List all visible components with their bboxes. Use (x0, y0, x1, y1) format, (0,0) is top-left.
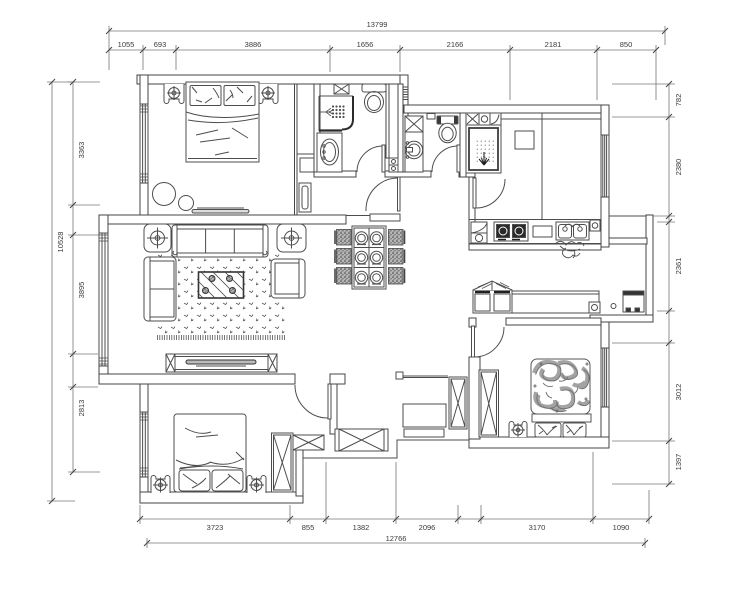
svg-text:693: 693 (154, 40, 167, 49)
svg-text:10528: 10528 (56, 232, 65, 253)
svg-text:3886: 3886 (245, 40, 262, 49)
svg-text:3363: 3363 (77, 142, 86, 159)
svg-text:1656: 1656 (357, 40, 374, 49)
svg-text:2166: 2166 (447, 40, 464, 49)
svg-text:850: 850 (620, 40, 633, 49)
svg-text:2813: 2813 (77, 400, 86, 417)
svg-text:1397: 1397 (674, 454, 683, 471)
svg-text:13799: 13799 (367, 20, 388, 29)
svg-text:3895: 3895 (77, 282, 86, 299)
svg-text:1055: 1055 (118, 40, 135, 49)
svg-text:1090: 1090 (613, 523, 630, 532)
svg-text:2380: 2380 (674, 159, 683, 176)
svg-text:3012: 3012 (674, 384, 683, 401)
svg-text:2096: 2096 (419, 523, 436, 532)
svg-text:2181: 2181 (545, 40, 562, 49)
svg-text:3723: 3723 (207, 523, 224, 532)
svg-text:1382: 1382 (353, 523, 370, 532)
svg-text:12766: 12766 (386, 534, 407, 543)
svg-text:3170: 3170 (529, 523, 546, 532)
svg-text:2361: 2361 (674, 258, 683, 275)
svg-text:855: 855 (302, 523, 315, 532)
svg-text:782: 782 (674, 94, 683, 107)
